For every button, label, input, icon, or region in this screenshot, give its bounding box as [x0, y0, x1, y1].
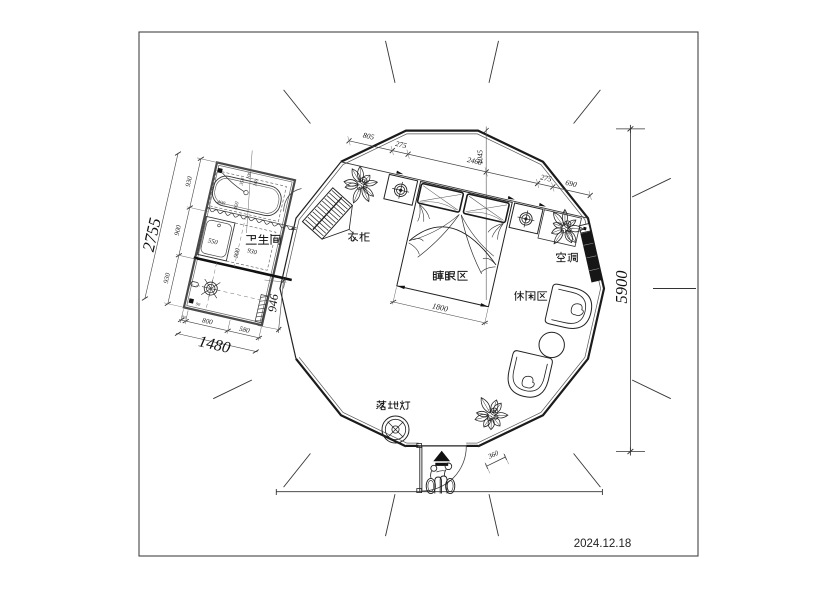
- svg-text:1045: 1045: [476, 150, 484, 165]
- svg-text:5900: 5900: [612, 270, 631, 304]
- svg-text:946: 946: [265, 293, 281, 312]
- svg-text:2024.12.18: 2024.12.18: [574, 538, 632, 550]
